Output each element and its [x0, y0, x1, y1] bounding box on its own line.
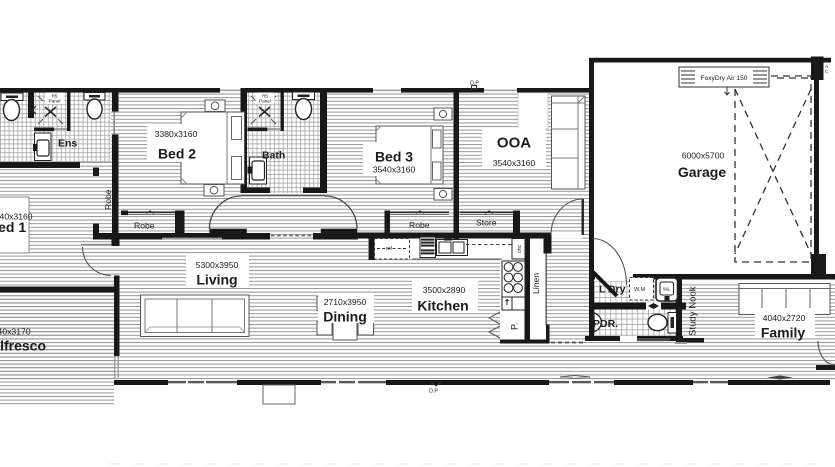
svg-text:Family: Family	[761, 325, 806, 341]
svg-text:Alfresco: Alfresco	[0, 338, 46, 354]
svg-text:3640x3170: 3640x3170	[0, 327, 31, 337]
svg-text:Bed 1: Bed 1	[0, 219, 26, 235]
svg-text:Robe: Robe	[103, 189, 113, 210]
svg-text:D.P: D.P	[470, 81, 479, 87]
svg-text:Panel: Panel	[259, 99, 271, 104]
svg-text:96L: 96L	[663, 287, 671, 292]
svg-text:Dining: Dining	[323, 309, 367, 325]
svg-text:P.: P.	[510, 323, 520, 330]
svg-text:Garage: Garage	[678, 164, 726, 180]
svg-text:Study Nook: Study Nook	[688, 286, 699, 336]
svg-text:4040x2720: 4040x2720	[763, 313, 806, 323]
svg-text:Bed 3: Bed 3	[375, 149, 413, 165]
svg-text:3540x3160: 3540x3160	[493, 158, 536, 168]
svg-text:ref: ref	[386, 246, 392, 252]
svg-text:Robe: Robe	[134, 221, 155, 231]
svg-text:5300x3950: 5300x3950	[196, 260, 239, 270]
svg-text:Bed 2: Bed 2	[158, 146, 196, 162]
svg-text:Store: Store	[476, 218, 497, 228]
svg-text:L'Dry: L'Dry	[599, 284, 626, 296]
svg-text:3380x3160: 3380x3160	[155, 129, 198, 139]
svg-text:6000x5700: 6000x5700	[682, 151, 725, 161]
svg-text:Bath: Bath	[262, 150, 285, 162]
svg-text:Linen: Linen	[531, 273, 541, 294]
svg-text:Robe: Robe	[409, 220, 430, 230]
svg-text:FoxyDry Air 150: FoxyDry Air 150	[701, 75, 748, 82]
svg-text:OOA: OOA	[497, 135, 531, 152]
svg-text:Living: Living	[196, 272, 237, 288]
svg-text:Ens: Ens	[58, 138, 77, 150]
svg-text:D.P: D.P	[429, 389, 438, 395]
svg-text:PDR.: PDR.	[593, 318, 618, 330]
svg-text:2710x3950: 2710x3950	[324, 297, 367, 307]
svg-text:Panel: Panel	[49, 99, 61, 104]
svg-text:Kitchen: Kitchen	[417, 298, 468, 314]
svg-text:W.M: W.M	[634, 287, 646, 293]
svg-text:C: C	[825, 69, 829, 75]
svg-text:3500x2890: 3500x2890	[423, 285, 466, 295]
svg-text:3540x3160: 3540x3160	[373, 165, 416, 175]
svg-text:ohc: ohc	[517, 244, 523, 253]
